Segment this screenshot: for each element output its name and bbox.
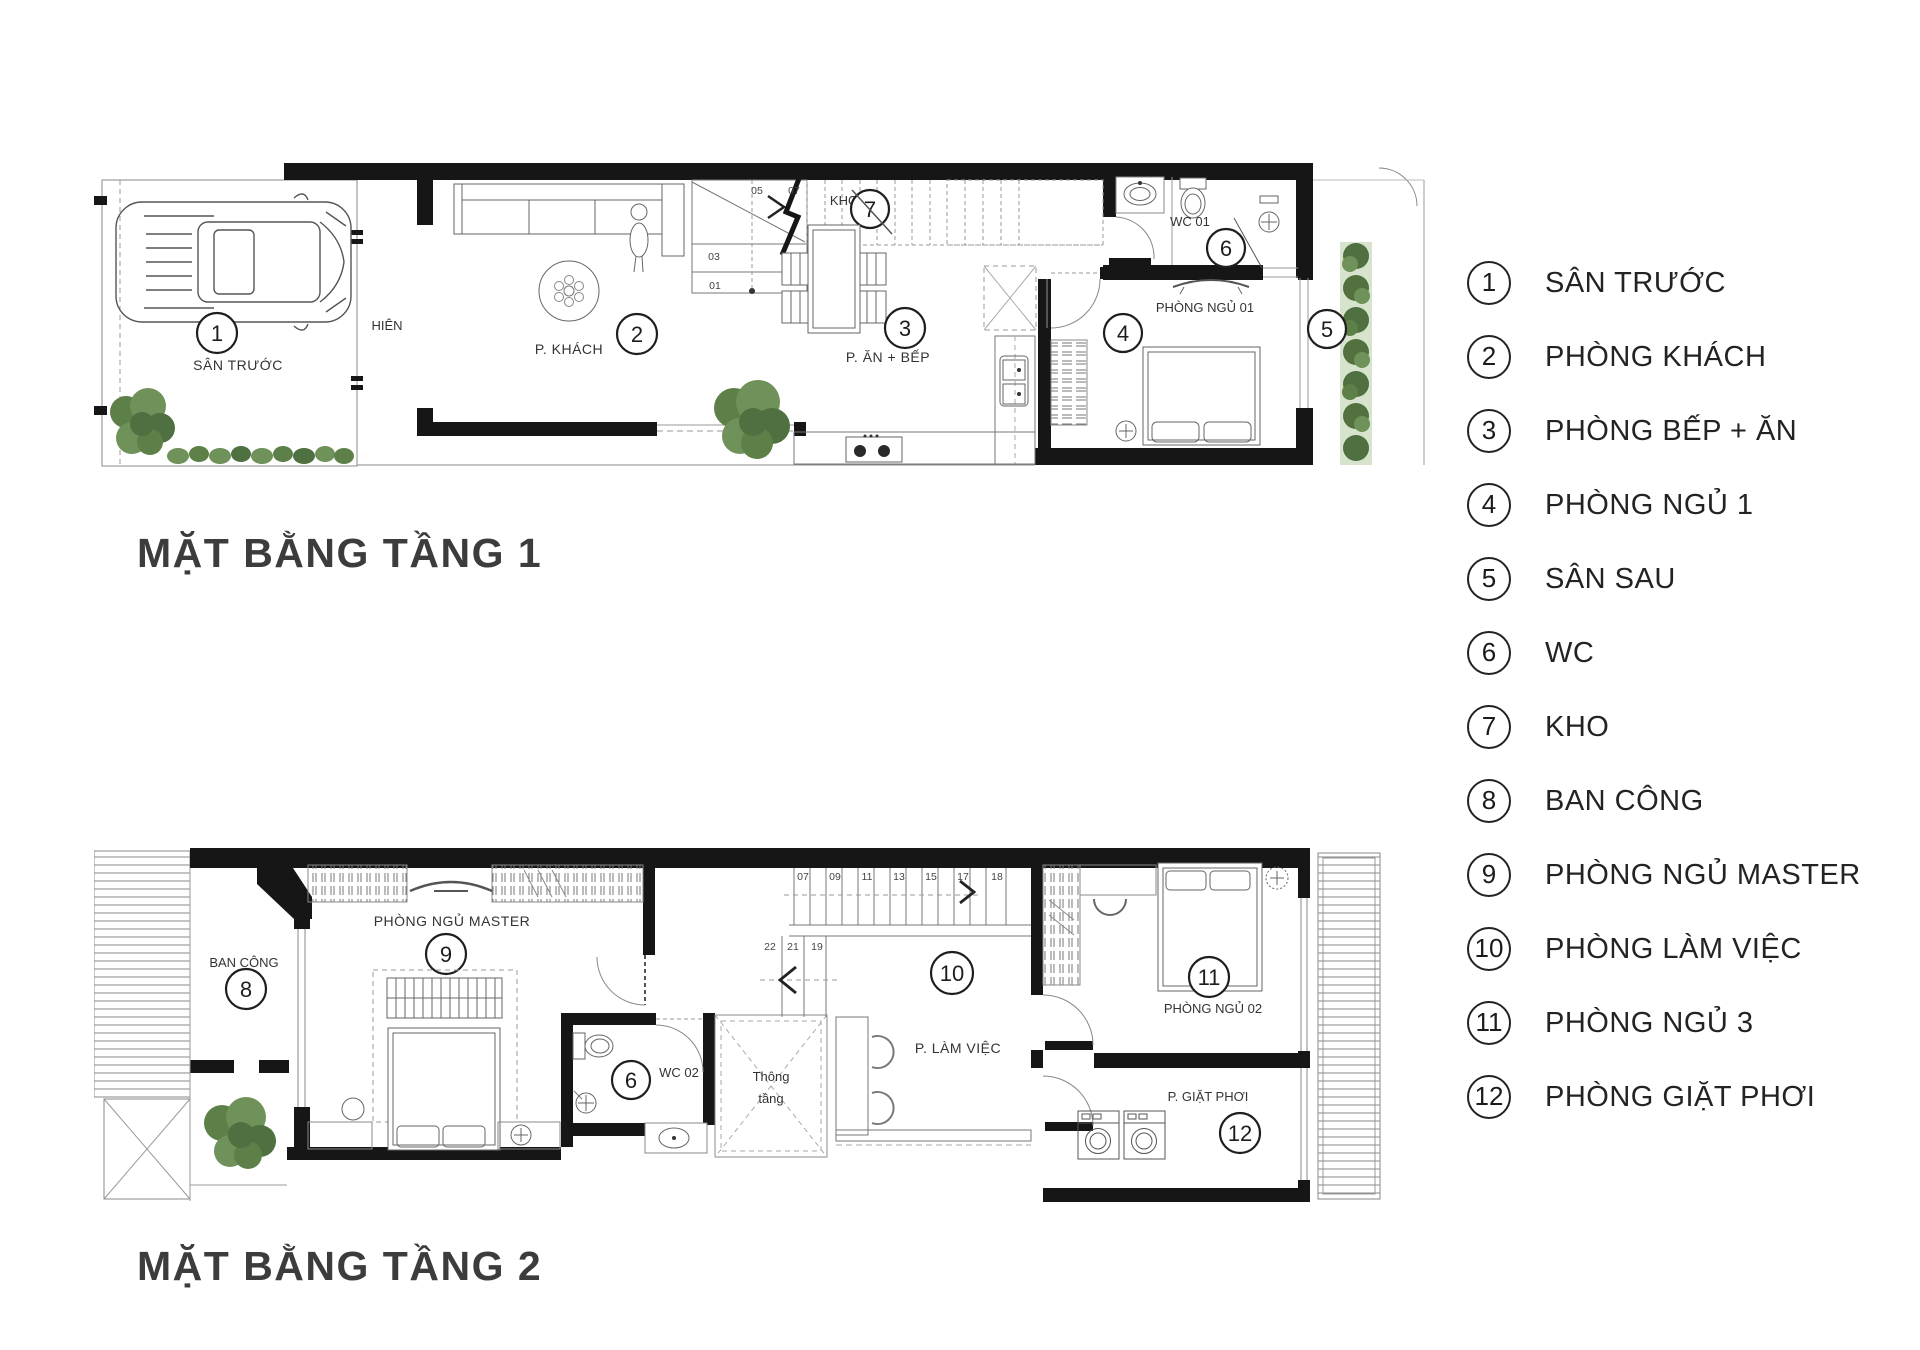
svg-text:13: 13 — [893, 871, 905, 883]
front-shrubs — [167, 446, 354, 464]
legend-num-1: 1 — [1467, 261, 1511, 305]
svg-text:PHÒNG NGỦ 02: PHÒNG NGỦ 02 — [1164, 1001, 1262, 1016]
kitchen-island — [984, 266, 1036, 330]
svg-text:21: 21 — [787, 941, 799, 953]
svg-text:1: 1 — [211, 321, 223, 346]
svg-text:18: 18 — [991, 871, 1003, 883]
staircase2 — [760, 868, 1031, 1017]
svg-text:15: 15 — [925, 871, 937, 883]
floor1-plan: 1 SÂN TRƯỚC HIÊN 2 P. KHÁCH — [94, 160, 1456, 470]
legend-item-3: 3 PHÒNG BẾP + ĂN — [1467, 409, 1861, 453]
corner-bush — [110, 388, 175, 455]
legend-item-4: 4 PHÒNG NGỦ 1 — [1467, 483, 1861, 527]
bedroom2 — [1043, 863, 1288, 991]
legend-num-9: 9 — [1467, 853, 1511, 897]
svg-text:12: 12 — [1228, 1121, 1252, 1146]
floor2-title: MẶT BẰNG TẦNG 2 — [137, 1243, 542, 1290]
legend-label-10: PHÒNG LÀM VIỆC — [1545, 933, 1802, 966]
svg-text:5: 5 — [1321, 317, 1333, 342]
living-room-marker: 2 P. KHÁCH — [535, 314, 657, 357]
legend-label-8: BAN CÔNG — [1545, 785, 1704, 818]
left-louver-roof — [94, 851, 190, 1199]
legend-label-7: KHO — [1545, 711, 1609, 744]
legend-num-11: 11 — [1467, 1001, 1511, 1045]
svg-text:PHÒNG NGỦ 01: PHÒNG NGỦ 01 — [1156, 300, 1254, 315]
kitchen-tree — [714, 380, 790, 459]
svg-text:19: 19 — [811, 941, 823, 953]
legend-label-12: PHÒNG GIẶT PHƠI — [1545, 1081, 1815, 1114]
svg-text:4: 4 — [1117, 321, 1129, 346]
legend-label-9: PHÒNG NGỦ MASTER — [1545, 859, 1861, 892]
floor2-plan: BAN CÔNG 8 PHÒNG NGỦ MASTER 9 — [94, 845, 1456, 1205]
bedroom1-marker: 4 PHÒNG NGỦ 01 — [1104, 300, 1254, 352]
svg-text:9: 9 — [440, 942, 452, 967]
svg-text:07: 07 — [797, 871, 809, 883]
legend-label-2: PHÒNG KHÁCH — [1545, 341, 1766, 374]
svg-text:WC 01: WC 01 — [1170, 214, 1210, 229]
svg-text:WC 02: WC 02 — [659, 1065, 699, 1080]
master-bed — [308, 970, 560, 1150]
svg-text:03: 03 — [708, 251, 720, 263]
svg-text:3: 3 — [899, 316, 911, 341]
svg-text:P. KHÁCH: P. KHÁCH — [535, 341, 603, 357]
svg-text:Thông: Thông — [753, 1069, 790, 1084]
legend-item-6: 6 WC — [1467, 631, 1861, 675]
hien-label: HIÊN — [371, 318, 402, 333]
legend-num-2: 2 — [1467, 335, 1511, 379]
svg-text:2: 2 — [631, 322, 643, 347]
svg-text:6: 6 — [625, 1068, 637, 1093]
car — [116, 194, 351, 330]
legend: 1 SÂN TRƯỚC 2 PHÒNG KHÁCH 3 PHÒNG BẾP + … — [1467, 261, 1861, 1149]
legend-item-7: 7 KHO — [1467, 705, 1861, 749]
legend-label-11: PHÒNG NGỦ 3 — [1545, 1007, 1754, 1040]
svg-text:P. LÀM VIỆC: P. LÀM VIỆC — [915, 1040, 1001, 1056]
void-thong-tang: Thông tầng — [715, 1015, 827, 1157]
svg-text:SÂN TRƯỚC: SÂN TRƯỚC — [193, 357, 283, 373]
legend-label-3: PHÒNG BẾP + ĂN — [1545, 415, 1797, 448]
wc2-marker: 6 WC 02 — [612, 1061, 699, 1099]
svg-text:PHÒNG NGỦ MASTER: PHÒNG NGỦ MASTER — [374, 912, 531, 929]
laundry — [1078, 1111, 1165, 1159]
svg-text:09: 09 — [829, 871, 841, 883]
svg-text:10: 10 — [940, 961, 964, 986]
work-room — [836, 1017, 1031, 1145]
legend-label-4: PHÒNG NGỦ 1 — [1545, 489, 1754, 522]
legend-num-12: 12 — [1467, 1075, 1511, 1119]
legend-num-7: 7 — [1467, 705, 1511, 749]
back-yard: 5 — [1308, 180, 1424, 465]
svg-text:17: 17 — [957, 871, 969, 883]
legend-num-5: 5 — [1467, 557, 1511, 601]
legend-label-5: SÂN SAU — [1545, 563, 1676, 596]
svg-text:BAN CÔNG: BAN CÔNG — [209, 955, 278, 970]
floor1-title: MẶT BẰNG TẦNG 1 — [137, 530, 542, 577]
dining-table — [782, 225, 886, 333]
legend-num-10: 10 — [1467, 927, 1511, 971]
balcony-marker: BAN CÔNG 8 — [209, 955, 278, 1009]
legend-num-8: 8 — [1467, 779, 1511, 823]
legend-num-4: 4 — [1467, 483, 1511, 527]
wc1-marker: WC 01 6 — [1170, 214, 1245, 267]
svg-text:11: 11 — [1198, 965, 1221, 990]
coffee-table — [539, 261, 599, 321]
legend-num-6: 6 — [1467, 631, 1511, 675]
svg-text:P. ĂN + BẾP: P. ĂN + BẾP — [846, 349, 930, 365]
hall-doors — [1043, 995, 1093, 1126]
master-marker: PHÒNG NGỦ MASTER 9 — [374, 912, 531, 974]
svg-text:11: 11 — [862, 871, 873, 883]
master-door — [597, 955, 645, 1005]
right-louver-balcony — [1318, 853, 1380, 1199]
legend-item-12: 12 PHÒNG GIẶT PHƠI — [1467, 1075, 1861, 1119]
svg-text:tầng: tầng — [758, 1091, 783, 1106]
master-wardrobe — [308, 865, 643, 902]
legend-item-10: 10 PHÒNG LÀM VIỆC — [1467, 927, 1861, 971]
laundry-marker: P. GIẶT PHƠI 12 — [1168, 1089, 1260, 1153]
legend-item-11: 11 PHÒNG NGỦ 3 — [1467, 1001, 1861, 1045]
legend-item-2: 2 PHÒNG KHÁCH — [1467, 335, 1861, 379]
svg-text:6: 6 — [1220, 236, 1232, 261]
legend-item-9: 9 PHÒNG NGỦ MASTER — [1467, 853, 1861, 897]
svg-text:P. GIẶT PHƠI: P. GIẶT PHƠI — [1168, 1089, 1249, 1104]
svg-text:07: 07 — [788, 185, 800, 197]
work-room-marker: 10 P. LÀM VIỆC — [915, 952, 1001, 1056]
person-figure — [630, 204, 648, 272]
legend-item-1: 1 SÂN TRƯỚC — [1467, 261, 1861, 305]
legend-item-5: 5 SÂN SAU — [1467, 557, 1861, 601]
legend-label-1: SÂN TRƯỚC — [1545, 267, 1726, 300]
svg-text:8: 8 — [240, 977, 252, 1002]
legend-item-8: 8 BAN CÔNG — [1467, 779, 1861, 823]
svg-text:22: 22 — [764, 941, 776, 953]
balcony-tree — [204, 1097, 276, 1169]
legend-label-6: WC — [1545, 637, 1594, 670]
legend-num-3: 3 — [1467, 409, 1511, 453]
sofa — [454, 184, 684, 256]
svg-text:05: 05 — [751, 185, 763, 197]
svg-text:01: 01 — [709, 280, 721, 292]
